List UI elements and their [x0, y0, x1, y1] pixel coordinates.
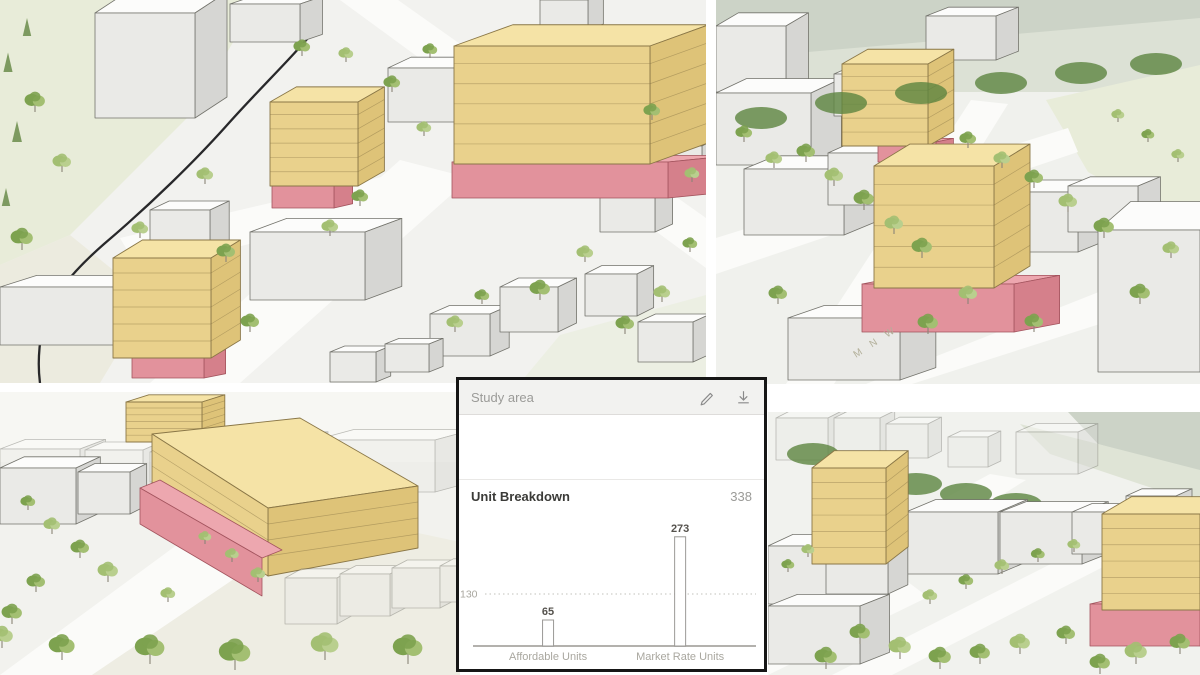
proposed-building-right: [1090, 497, 1200, 646]
screenshot-collage: M N W: [0, 0, 1200, 675]
proposed-building-c: [113, 240, 240, 378]
study-area-panel: Study area Unit Breakdown 338 13065Affor…: [456, 377, 767, 672]
panel-header: Study area: [459, 380, 764, 415]
svg-text:Affordable Units: Affordable Units: [509, 651, 588, 663]
unit-breakdown-header: Unit Breakdown 338: [459, 479, 764, 504]
render-bottom-left-street: [0, 392, 460, 675]
unit-breakdown-bar-chart: 13065Affordable Units273Market Rate Unit…: [459, 506, 764, 666]
panel-title: Study area: [471, 390, 534, 405]
render-bottom-right-corridor: [768, 412, 1200, 675]
svg-text:273: 273: [671, 523, 689, 535]
render-top-right-closeup: M N W: [716, 0, 1200, 384]
proposed-building-left: [812, 451, 908, 564]
svg-text:130: 130: [460, 589, 478, 601]
bar-market-rate-units: [675, 537, 686, 646]
download-icon[interactable]: [735, 389, 752, 406]
panel-empty-section: [459, 415, 764, 479]
bar-affordable-units: [543, 620, 554, 646]
edit-pencil-icon[interactable]: [698, 389, 715, 406]
section-total-value: 338: [730, 489, 752, 504]
svg-text:65: 65: [542, 606, 554, 618]
context-buildings: [0, 457, 147, 524]
section-title: Unit Breakdown: [471, 489, 570, 504]
svg-text:Market Rate Units: Market Rate Units: [636, 651, 725, 663]
proposed-building-b: [452, 25, 706, 198]
render-top-left-aerial: [0, 0, 706, 383]
